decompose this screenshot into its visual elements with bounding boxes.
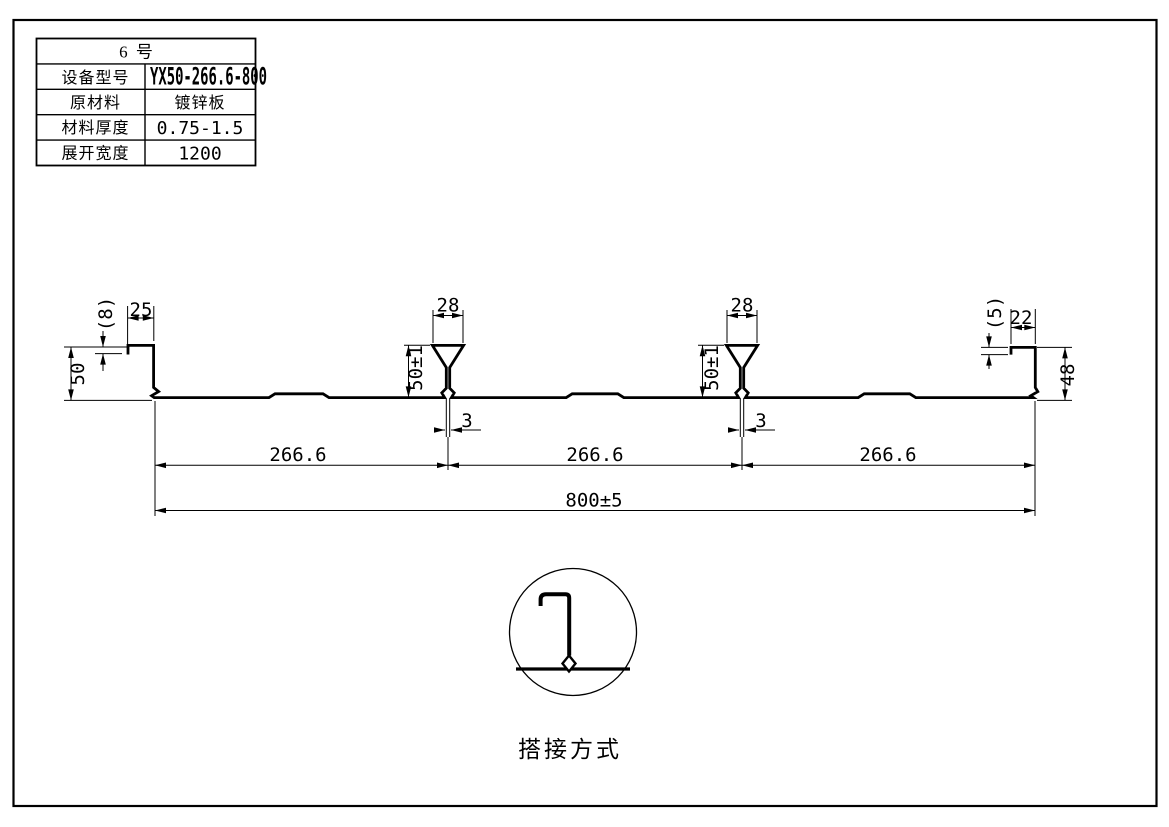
dim-pitch-1: 266.6	[269, 444, 326, 466]
dim-rib1-height: 50±1	[405, 345, 427, 391]
detail-caption: 搭接方式	[518, 737, 622, 762]
raw-material-value: 镀锌板	[174, 94, 225, 112]
material-thickness-value: 0.75-1.5	[157, 118, 244, 139]
dim-rib2-height: 50±1	[701, 345, 723, 391]
profile-outline	[128, 345, 1038, 397]
equipment-model-value: YX50-266.6-800	[150, 63, 267, 91]
dim-rib2-stem: 3	[755, 410, 766, 432]
dim-rib1-stem: 3	[461, 410, 472, 432]
detail-circle	[510, 569, 637, 696]
lap-joint-detail: 搭接方式	[510, 569, 637, 763]
unfolded-width-label: 展开宽度	[61, 145, 129, 163]
dim-left-step: (8)	[95, 297, 117, 331]
dim-rib1-top: 28	[437, 295, 460, 317]
dimension-arrowheads	[68, 313, 1068, 514]
dim-right-step: (5)	[984, 296, 1006, 330]
raw-material-label: 原材料	[70, 94, 121, 112]
dim-pitch-3: 266.6	[859, 444, 916, 466]
unfolded-width-value: 1200	[178, 143, 221, 164]
drawing-canvas: 6 号 设备型号 YX50-266.6-800 原材料 镀锌板 材料厚度 0.7…	[0, 0, 1169, 827]
dim-rib2-top: 28	[731, 295, 754, 317]
dim-right-height: 48	[1057, 364, 1079, 387]
dim-left-height: 50	[67, 363, 89, 386]
dim-pitch-2: 266.6	[566, 444, 623, 466]
title-block: 6 号 设备型号 YX50-266.6-800 原材料 镀锌板 材料厚度 0.7…	[37, 39, 268, 166]
material-thickness-label: 材料厚度	[61, 119, 129, 137]
dimension-texts: (8) 25 50 28 50±1 3 28 50±1 3 (5) 22 48 …	[67, 295, 1079, 512]
dim-right-lip: 22	[1010, 307, 1033, 329]
detail-overlap-hook	[541, 594, 570, 655]
dim-overall-width: 800±5	[565, 490, 622, 512]
dim-left-lip: 25	[130, 299, 153, 321]
dimension-lines	[64, 306, 1072, 516]
title-block-header: 6 号	[119, 43, 155, 62]
equipment-model-label: 设备型号	[61, 69, 129, 87]
drawing-sheet: 6 号 设备型号 YX50-266.6-800 原材料 镀锌板 材料厚度 0.7…	[0, 0, 1169, 827]
